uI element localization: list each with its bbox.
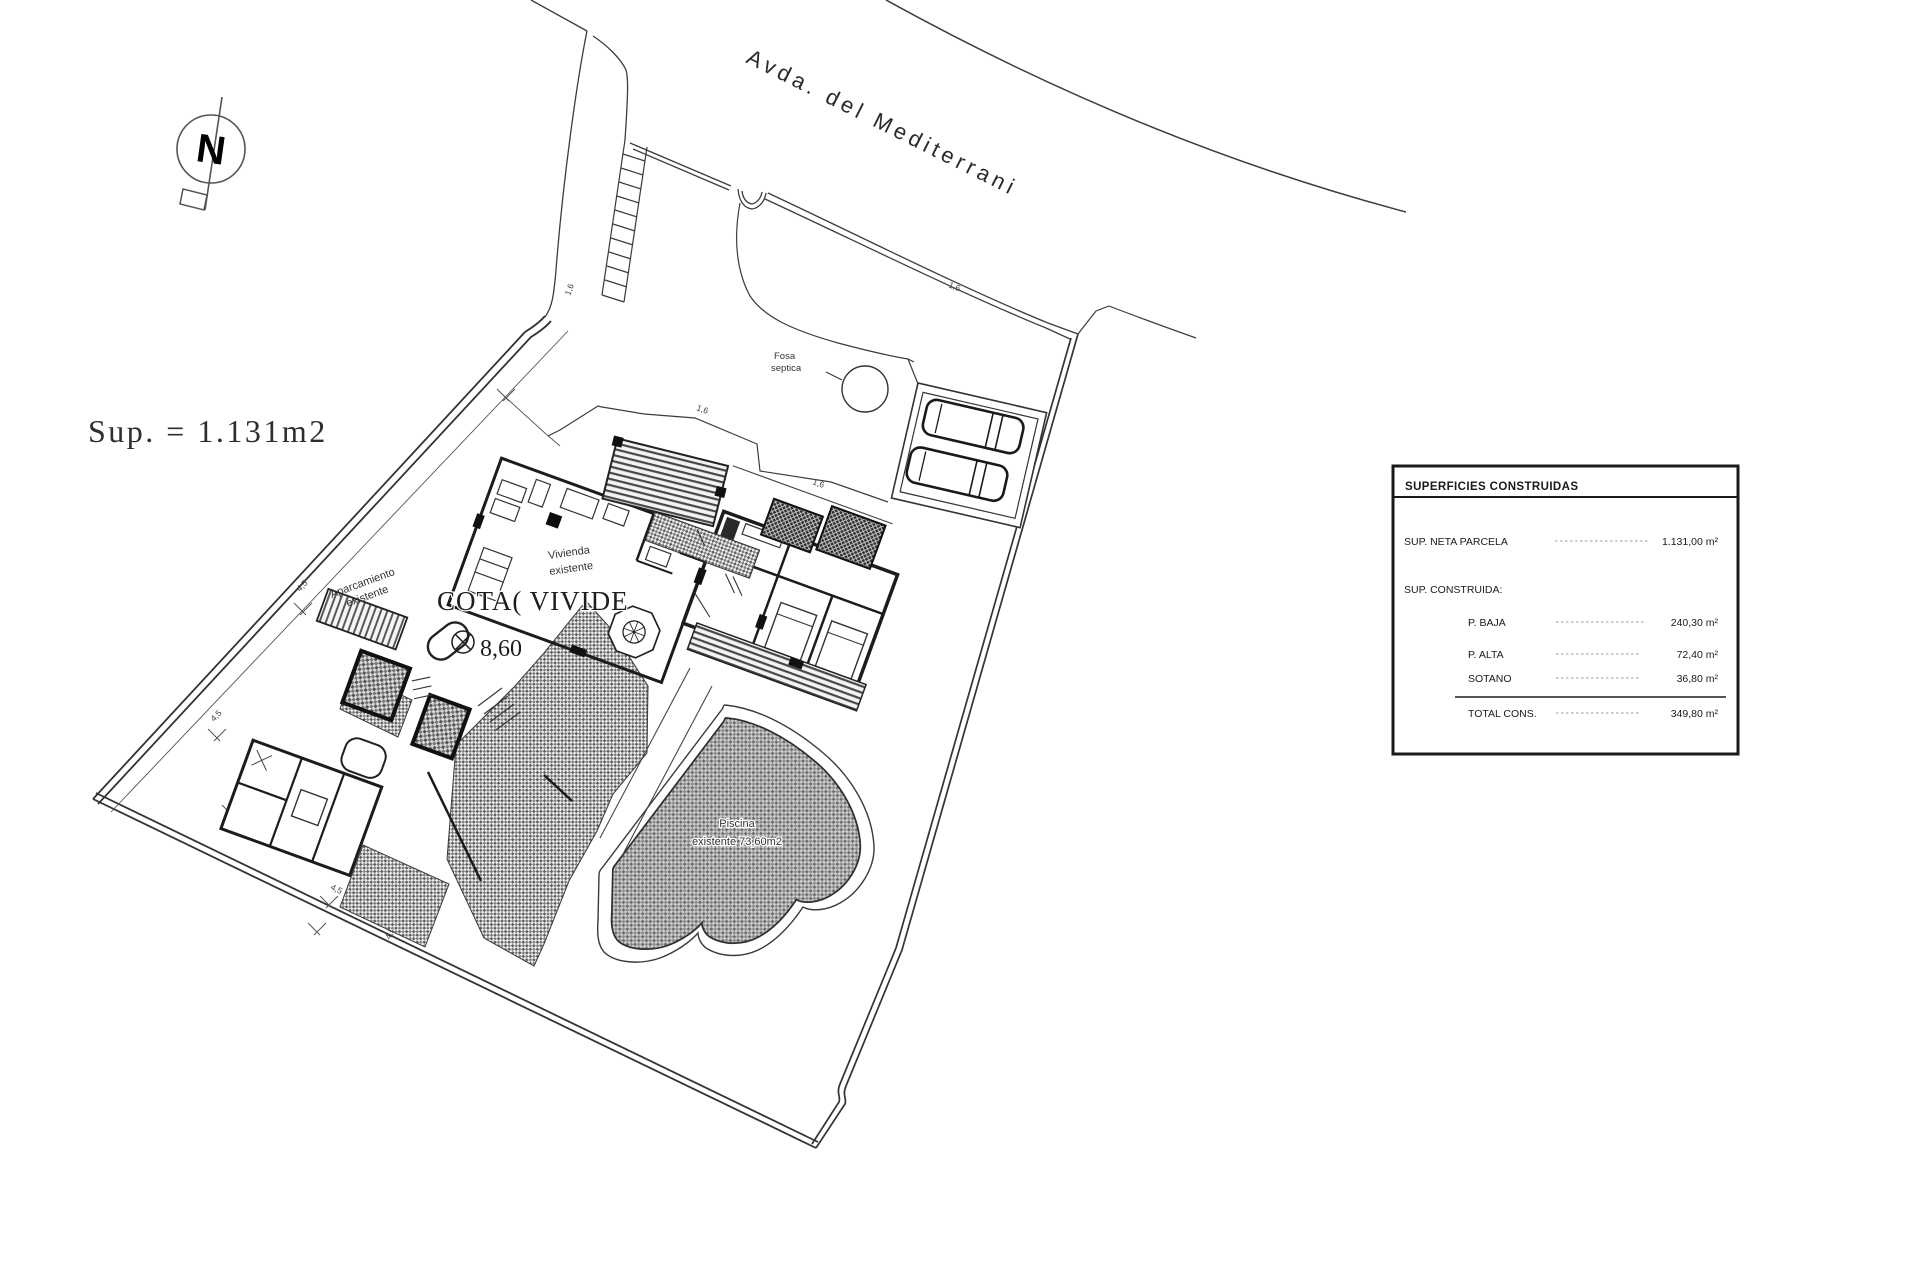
svg-text:P. BAJA: P. BAJA xyxy=(1468,617,1506,629)
svg-text:72,40 m²: 72,40 m² xyxy=(1677,649,1719,661)
svg-text:8,60: 8,60 xyxy=(480,636,522,662)
svg-text:SUPERFICIES CONSTRUIDAS: SUPERFICIES CONSTRUIDAS xyxy=(1405,481,1578,493)
svg-text:Fosa: Fosa xyxy=(774,351,796,362)
svg-text:1.131,00 m²: 1.131,00 m² xyxy=(1662,536,1719,548)
svg-text:240,30 m²: 240,30 m² xyxy=(1671,617,1719,629)
svg-text:SOTANO: SOTANO xyxy=(1468,673,1512,685)
svg-text:COTA( VIVIDE: COTA( VIVIDE xyxy=(437,586,629,616)
svg-text:SUP. CONSTRUIDA:: SUP. CONSTRUIDA: xyxy=(1404,584,1502,596)
svg-text:septica: septica xyxy=(771,363,802,374)
svg-text:existente 73,60m2: existente 73,60m2 xyxy=(692,836,782,848)
svg-text:36,80 m²: 36,80 m² xyxy=(1677,673,1719,685)
svg-text:349,80 m²: 349,80 m² xyxy=(1671,708,1719,720)
svg-text:P. ALTA: P. ALTA xyxy=(1468,649,1504,661)
svg-text:SUP. NETA PARCELA: SUP. NETA PARCELA xyxy=(1404,536,1508,548)
svg-text:N: N xyxy=(194,126,229,174)
svg-text:Piscina: Piscina xyxy=(719,818,755,830)
svg-text:TOTAL CONS.: TOTAL CONS. xyxy=(1468,708,1537,720)
svg-text:Sup. = 1.131m2: Sup. = 1.131m2 xyxy=(88,413,328,449)
